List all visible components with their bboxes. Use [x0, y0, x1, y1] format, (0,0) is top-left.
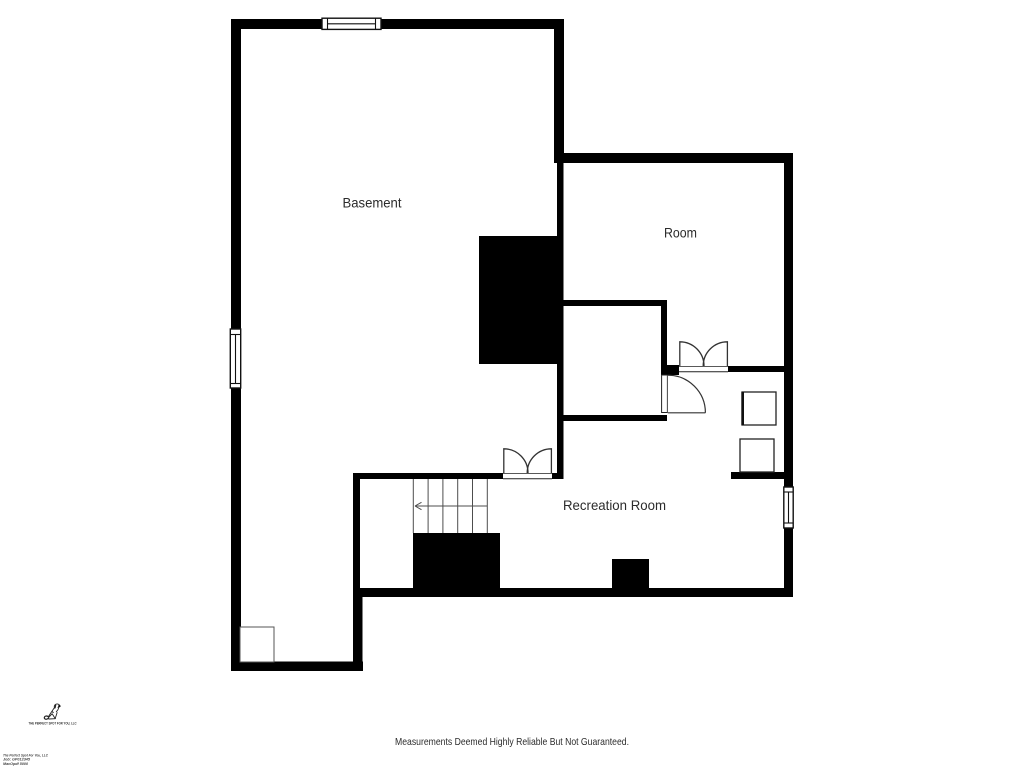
svg-text:Basement: Basement — [343, 195, 402, 211]
svg-text:THE PERFECT SPOT FOR YOU, LLC: THE PERFECT SPOT FOR YOU, LLC — [29, 721, 77, 725]
svg-text:Measurements Deemed Highly Rel: Measurements Deemed Highly Reliable But … — [395, 736, 629, 748]
svg-text:MacOpdf 5000: MacOpdf 5000 — [3, 761, 29, 766]
svg-text:Room: Room — [664, 225, 697, 241]
svg-text:Recreation Room: Recreation Room — [563, 497, 666, 513]
